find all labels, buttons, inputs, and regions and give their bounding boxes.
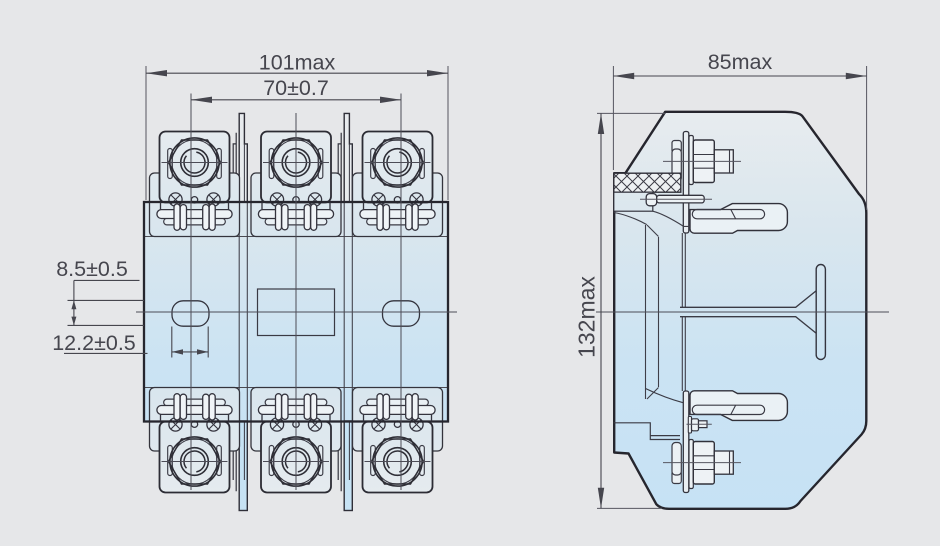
svg-text:101max: 101max: [259, 50, 336, 74]
svg-text:132max: 132max: [574, 276, 600, 358]
svg-text:70±0.7: 70±0.7: [263, 76, 329, 100]
svg-text:85max: 85max: [708, 50, 773, 74]
svg-text:12.2±0.5: 12.2±0.5: [52, 331, 136, 355]
svg-text:8.5±0.5: 8.5±0.5: [56, 257, 128, 281]
